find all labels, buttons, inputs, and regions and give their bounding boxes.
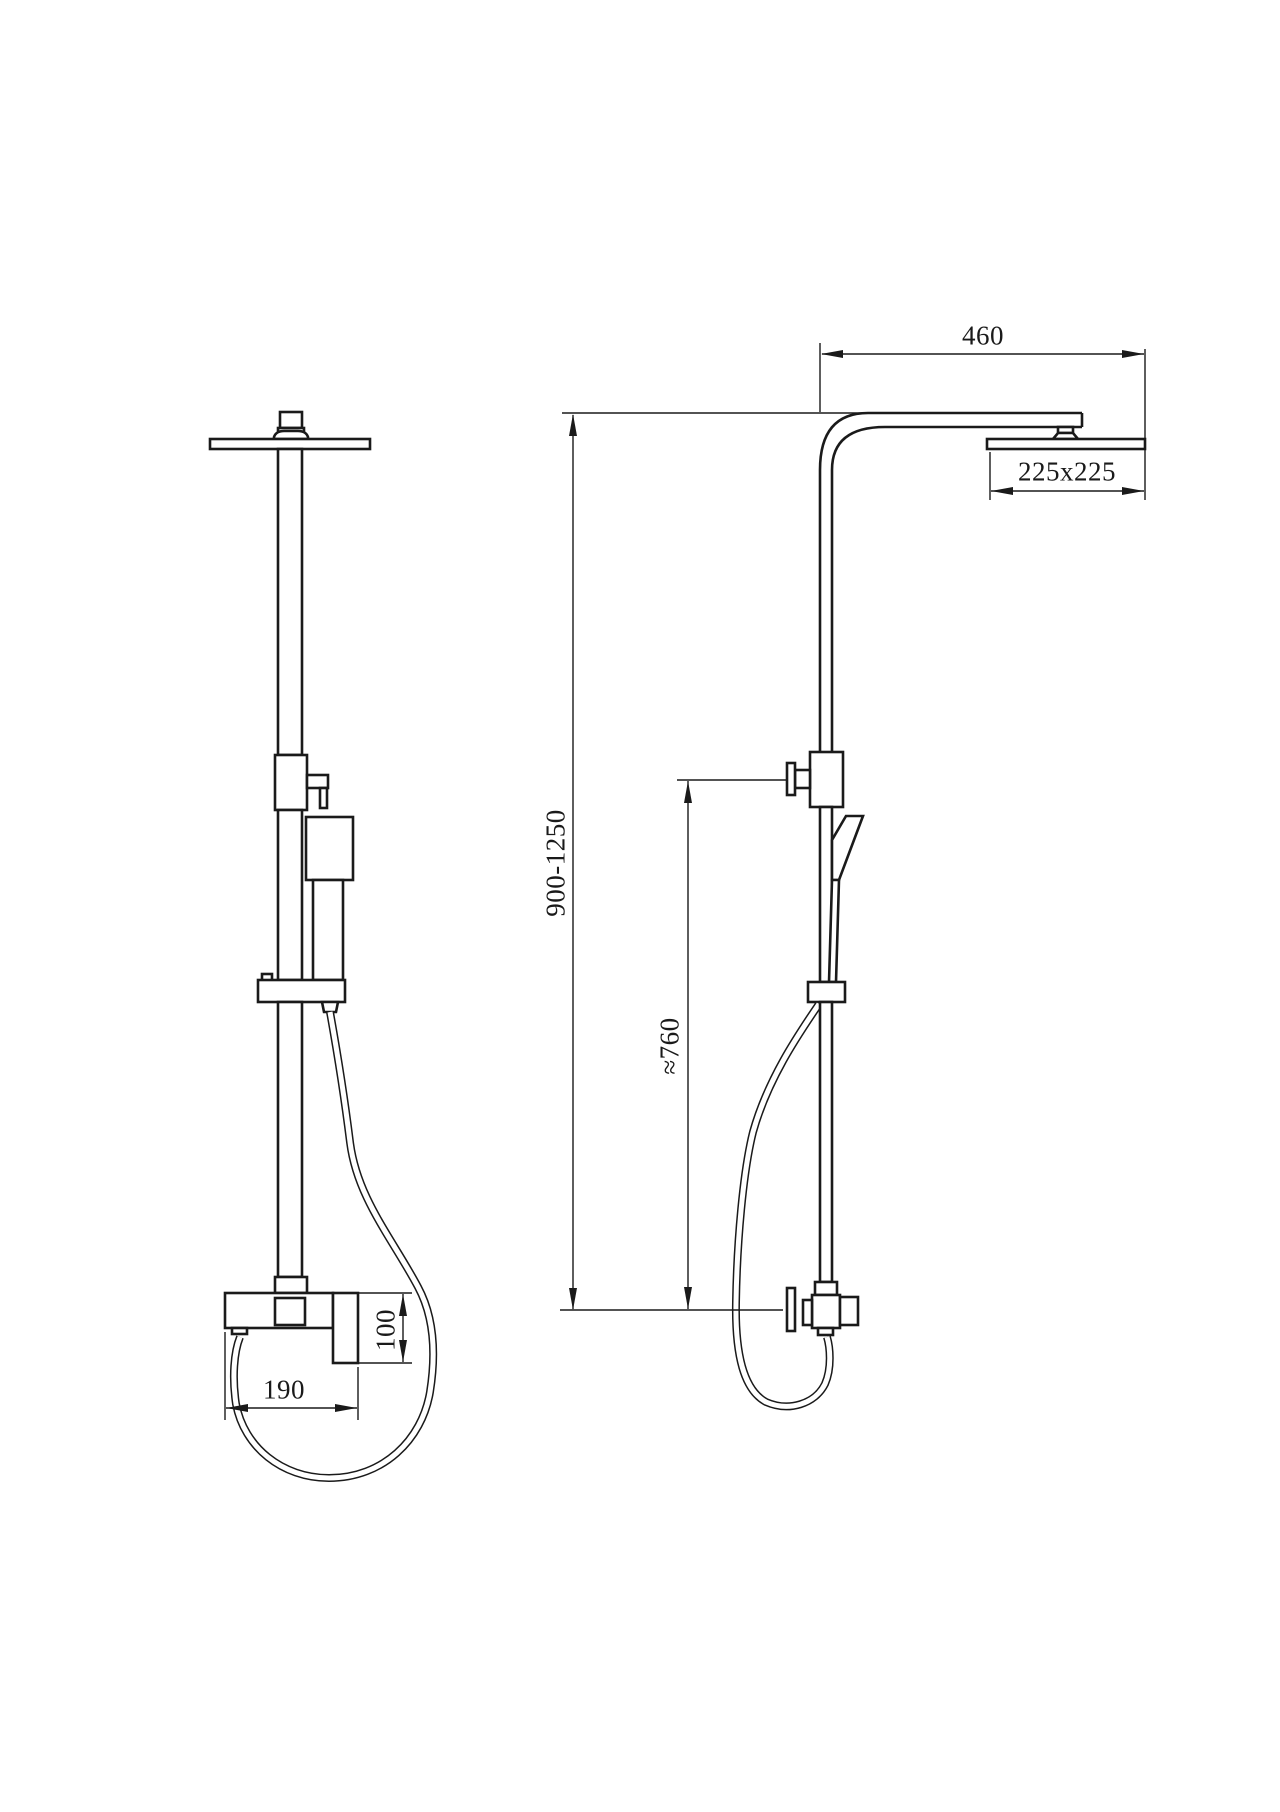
front-arm-connector	[280, 412, 302, 428]
side-valve-knob-cap	[787, 1288, 795, 1331]
front-riser-lower	[278, 1002, 302, 1277]
side-view	[736, 413, 1145, 1406]
shower-technical-drawing: 460 225x225 900-1250 ≈760 100 190	[0, 0, 1280, 1812]
front-hand-shower-head	[306, 817, 353, 880]
side-hose	[736, 1004, 830, 1406]
side-valve-knob-stem	[803, 1300, 812, 1325]
front-mixer-spout	[333, 1293, 358, 1363]
front-slide-bracket	[258, 980, 345, 1002]
dim-label-column-height: 900-1250	[541, 809, 572, 917]
side-diverter-knob-stem	[795, 770, 810, 788]
side-diverter-housing	[810, 752, 843, 807]
side-valve-body	[812, 1295, 840, 1328]
front-hand-shower-handle	[313, 880, 343, 980]
front-diverter-housing	[275, 755, 307, 810]
side-diverter-knob-cap	[787, 763, 795, 795]
front-diverter-lever	[307, 775, 328, 788]
front-diverter-lever-stem	[320, 788, 327, 808]
dim-label-mixer-width: 190	[263, 1375, 305, 1406]
front-riser-upper	[278, 449, 302, 755]
front-shower-head-plate	[210, 439, 370, 449]
side-hand-shower-head	[832, 816, 863, 880]
side-slide-bracket	[808, 982, 845, 1002]
side-wall-connector	[840, 1297, 858, 1325]
dim-label-handheld-height: ≈760	[655, 1017, 686, 1074]
front-riser-mid	[278, 810, 302, 980]
front-hose-nipple	[322, 1002, 338, 1012]
dimension-lines	[225, 343, 1145, 1420]
dim-label-mixer-height: 100	[371, 1309, 402, 1351]
drawing-linework	[0, 0, 1280, 1812]
side-hand-shower-handle	[829, 880, 839, 982]
side-valve-bottom-stub	[818, 1328, 833, 1335]
dim-label-head-size: 225x225	[1018, 457, 1116, 488]
front-mixer-center	[275, 1298, 305, 1325]
dim-label-arm-reach: 460	[962, 321, 1004, 352]
front-mixer-collar	[275, 1277, 307, 1293]
side-valve-top-stub	[815, 1282, 837, 1295]
side-shower-head-plate	[987, 439, 1145, 449]
side-riser-lower	[820, 1002, 832, 1282]
front-hose-inlet	[232, 1328, 247, 1334]
